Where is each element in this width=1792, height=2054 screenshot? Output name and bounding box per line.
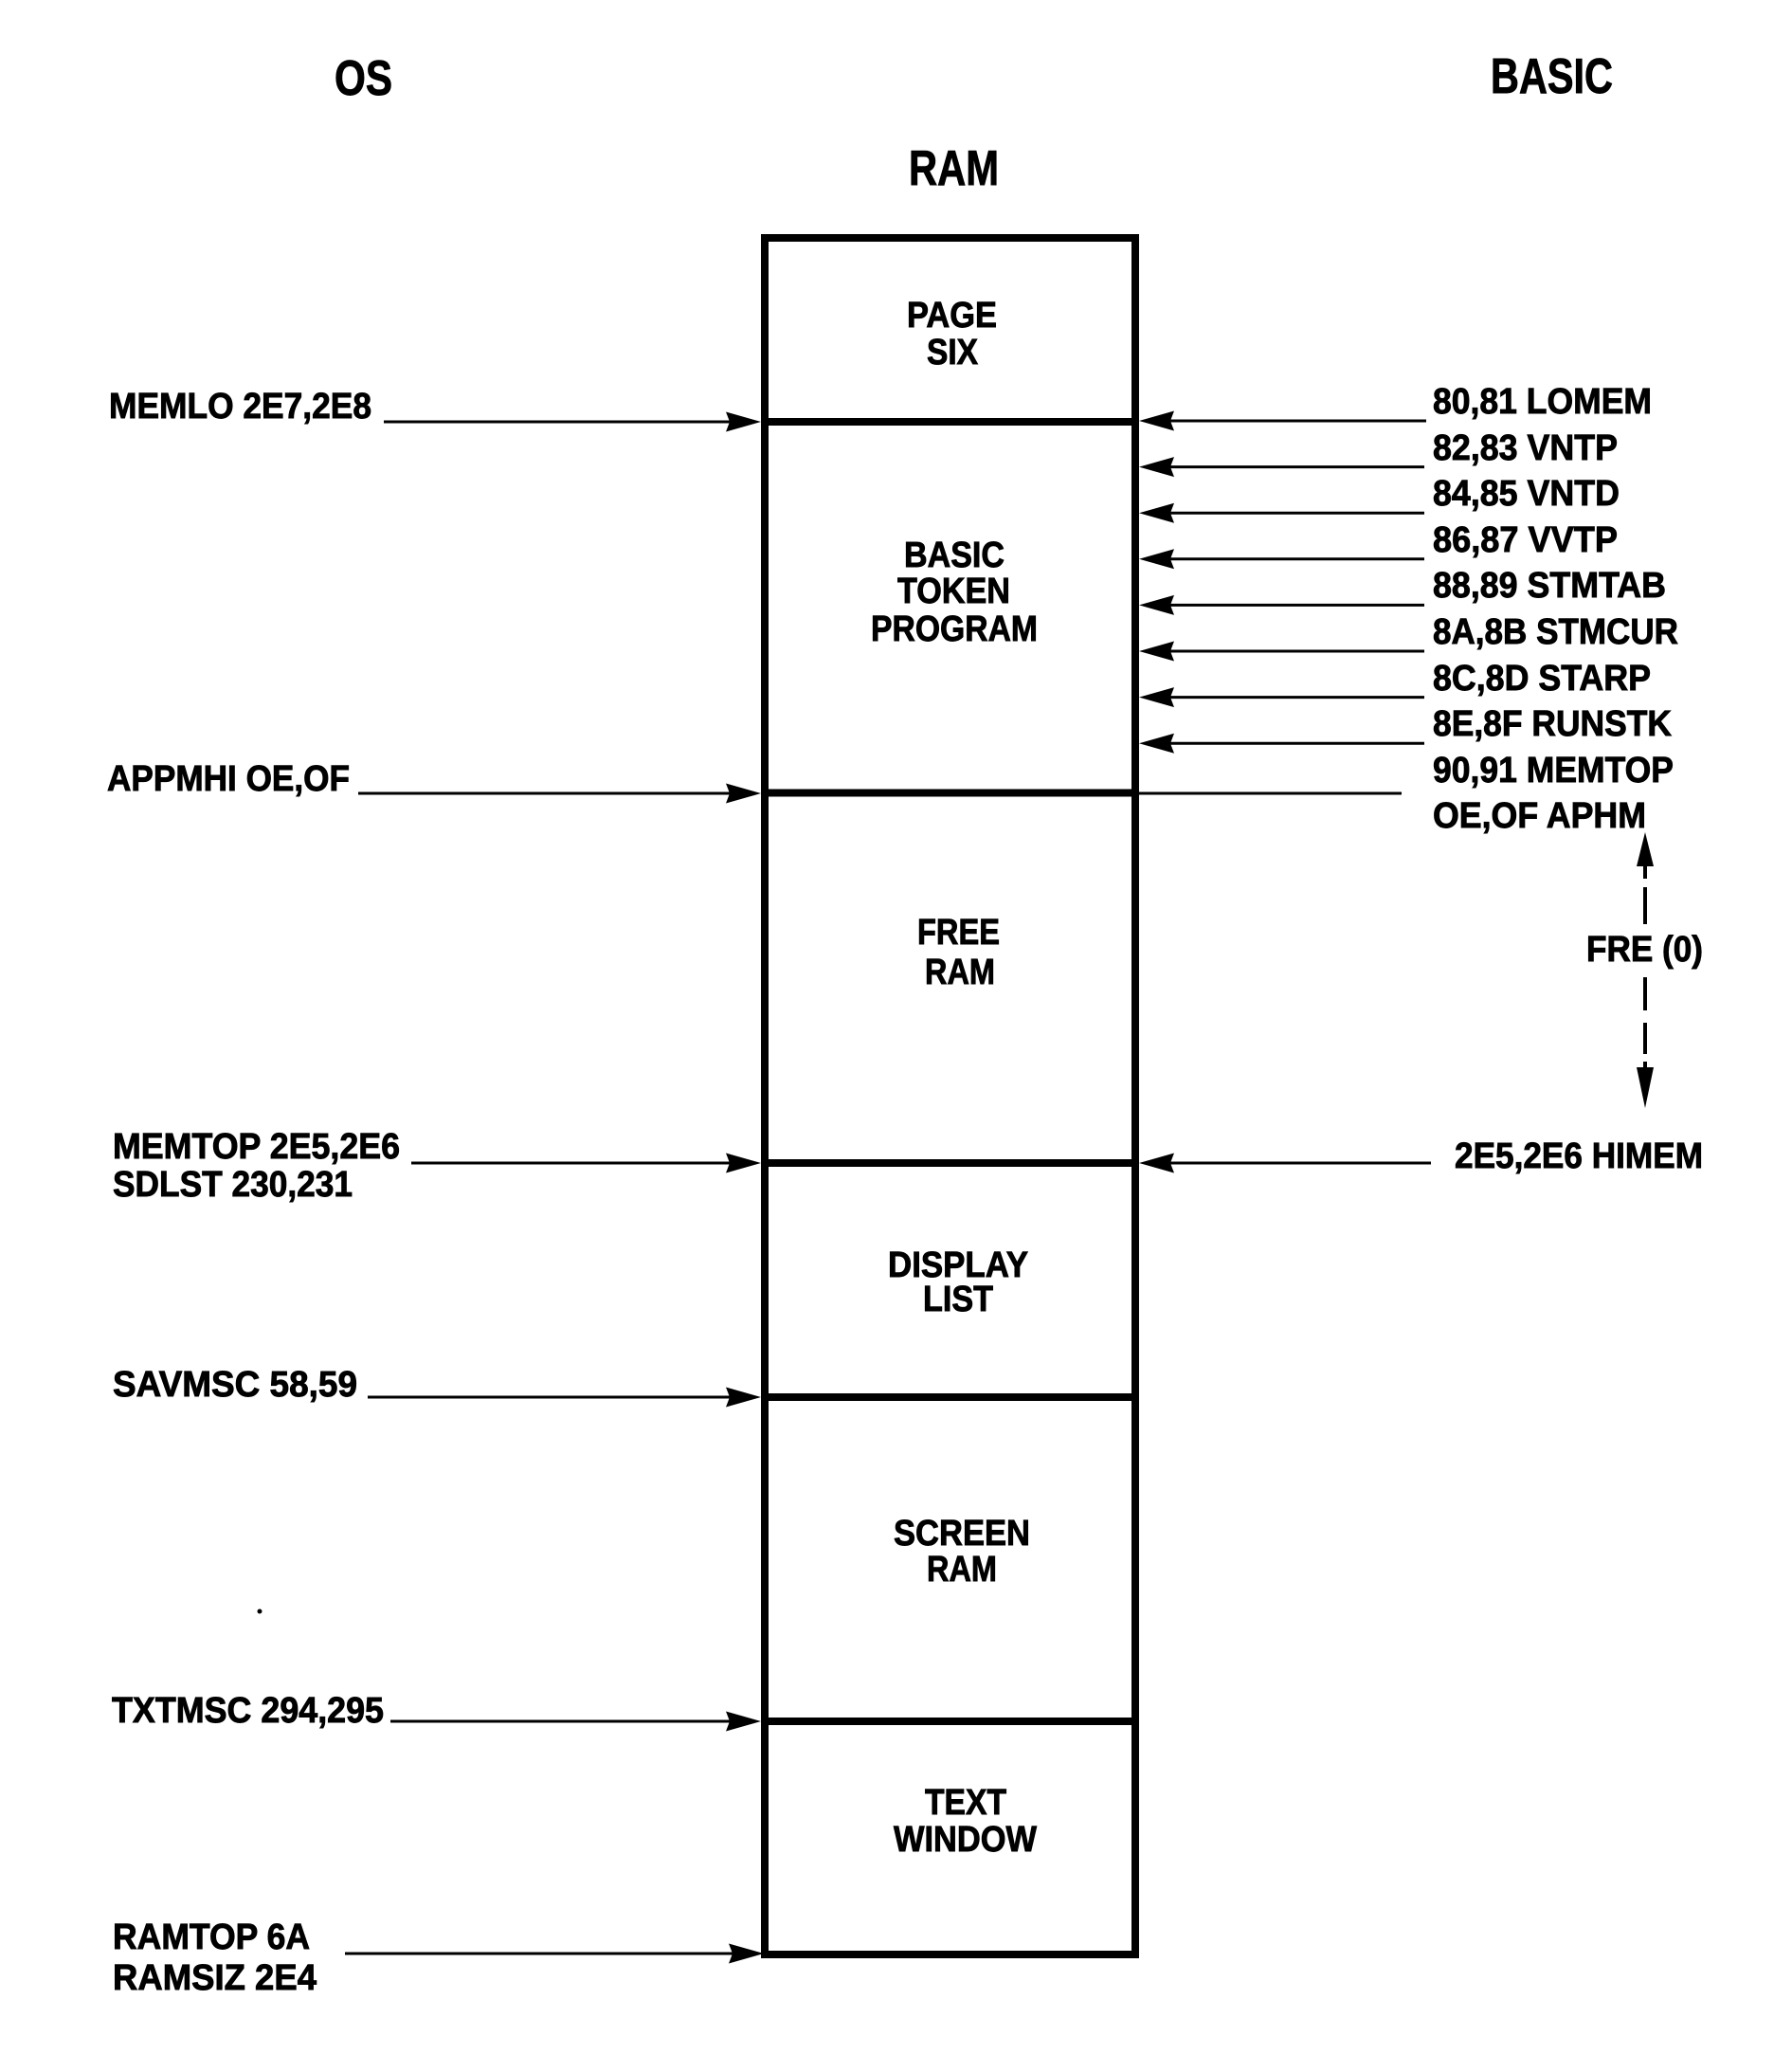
svg-text:RAMTOP 6A: RAMTOP 6A [113, 1918, 310, 1957]
svg-text:2E5,2E6 HIMEM: 2E5,2E6 HIMEM [1455, 1136, 1703, 1176]
svg-text:PAGE: PAGE [907, 296, 997, 336]
svg-text:RAMSIZ 2E4: RAMSIZ 2E4 [113, 1958, 317, 1998]
svg-text:SDLST 230,231: SDLST 230,231 [113, 1165, 353, 1205]
svg-text:MEMLO 2E7,2E8: MEMLO 2E7,2E8 [109, 387, 371, 427]
svg-text:BASIC: BASIC [904, 536, 1005, 575]
svg-text:RAM: RAM [909, 141, 999, 196]
svg-text:TEXT: TEXT [925, 1783, 1006, 1823]
svg-text:8C,8D STARP: 8C,8D STARP [1433, 659, 1651, 699]
svg-text:RAM: RAM [927, 1550, 997, 1590]
svg-text:RAM: RAM [925, 953, 995, 992]
svg-text:FREE: FREE [917, 913, 1000, 953]
svg-text:PROGRAM: PROGRAM [871, 609, 1038, 649]
svg-text:LIST: LIST [923, 1280, 993, 1319]
svg-text:82,83 VNTP: 82,83 VNTP [1433, 428, 1618, 468]
svg-text:84,85 VNTD: 84,85 VNTD [1433, 474, 1620, 514]
svg-text:TXTMSC 294,295: TXTMSC 294,295 [112, 1691, 384, 1731]
svg-text:8E,8F RUNSTK: 8E,8F RUNSTK [1433, 704, 1673, 744]
svg-text:80,81 LOMEM: 80,81 LOMEM [1433, 382, 1652, 422]
svg-text:MEMTOP 2E5,2E6: MEMTOP 2E5,2E6 [113, 1127, 400, 1167]
svg-text:SIX: SIX [927, 333, 979, 373]
svg-text:OS: OS [335, 51, 392, 106]
svg-text:WINDOW: WINDOW [894, 1820, 1037, 1860]
svg-text:90,91 MEMTOP: 90,91 MEMTOP [1433, 751, 1674, 791]
svg-text:BASIC: BASIC [1491, 49, 1613, 104]
svg-text:APPMHI OE,OF: APPMHI OE,OF [107, 759, 350, 799]
svg-text:86,87 VVTP: 86,87 VVTP [1433, 520, 1618, 560]
svg-text:SCREEN: SCREEN [894, 1514, 1030, 1554]
svg-text:SAVMSC 58,59: SAVMSC 58,59 [113, 1365, 357, 1405]
svg-text:FRE (0): FRE (0) [1586, 930, 1703, 970]
svg-text:OE,OF APHM: OE,OF APHM [1433, 796, 1646, 836]
svg-text:88,89 STMTAB: 88,89 STMTAB [1433, 566, 1666, 606]
svg-text:8A,8B STMCUR: 8A,8B STMCUR [1433, 612, 1678, 652]
svg-text:TOKEN: TOKEN [897, 572, 1010, 611]
